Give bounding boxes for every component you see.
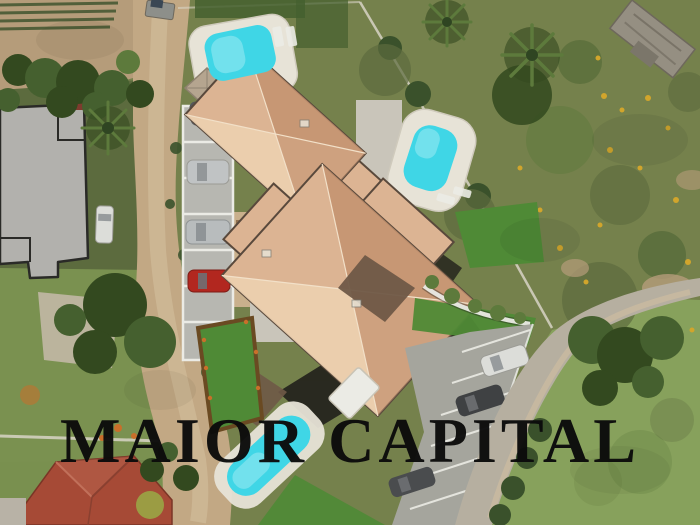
- palm-tree-left: [82, 102, 134, 154]
- hedge-block: [296, 0, 348, 48]
- aerial-photo-canvas: MAIOR CAPITAL: [0, 0, 700, 525]
- palm-tree-right: [502, 25, 562, 85]
- aerial-photo: MAIOR CAPITAL: [0, 0, 700, 525]
- white-car-carport: [187, 160, 229, 184]
- top-hedge: [195, 0, 305, 18]
- watermark-text: MAIOR CAPITAL: [60, 405, 640, 476]
- trailer: [145, 0, 175, 20]
- palm-tree-center: [423, 0, 471, 46]
- white-car-driveway: [95, 206, 113, 244]
